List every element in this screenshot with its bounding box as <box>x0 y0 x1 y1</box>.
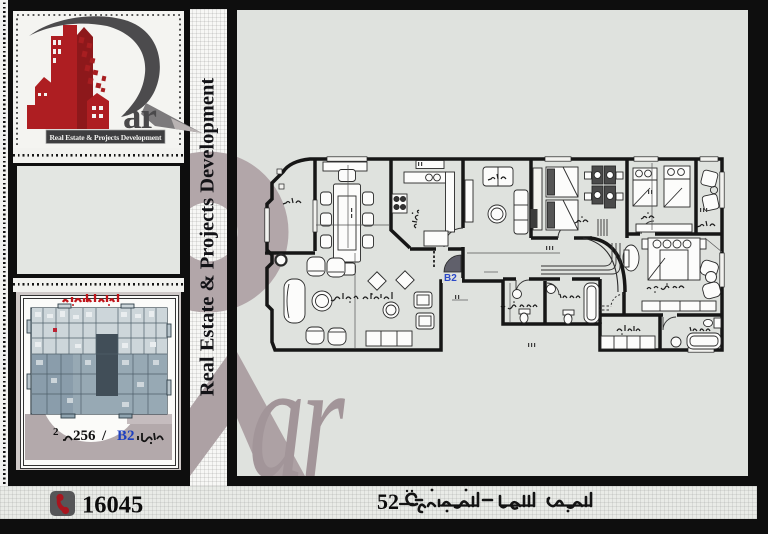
svg-text:256: 256 <box>73 428 96 444</box>
svg-text:Real Estate & Projects Develop: Real Estate & Projects Development <box>50 133 162 142</box>
svg-text:52: 52 <box>377 489 399 514</box>
svg-text:2: 2 <box>53 426 59 438</box>
svg-text:B2: B2 <box>444 273 457 284</box>
svg-text:/: / <box>101 428 107 444</box>
svg-text:B2: B2 <box>117 428 135 444</box>
svg-text:16045: 16045 <box>82 492 143 519</box>
